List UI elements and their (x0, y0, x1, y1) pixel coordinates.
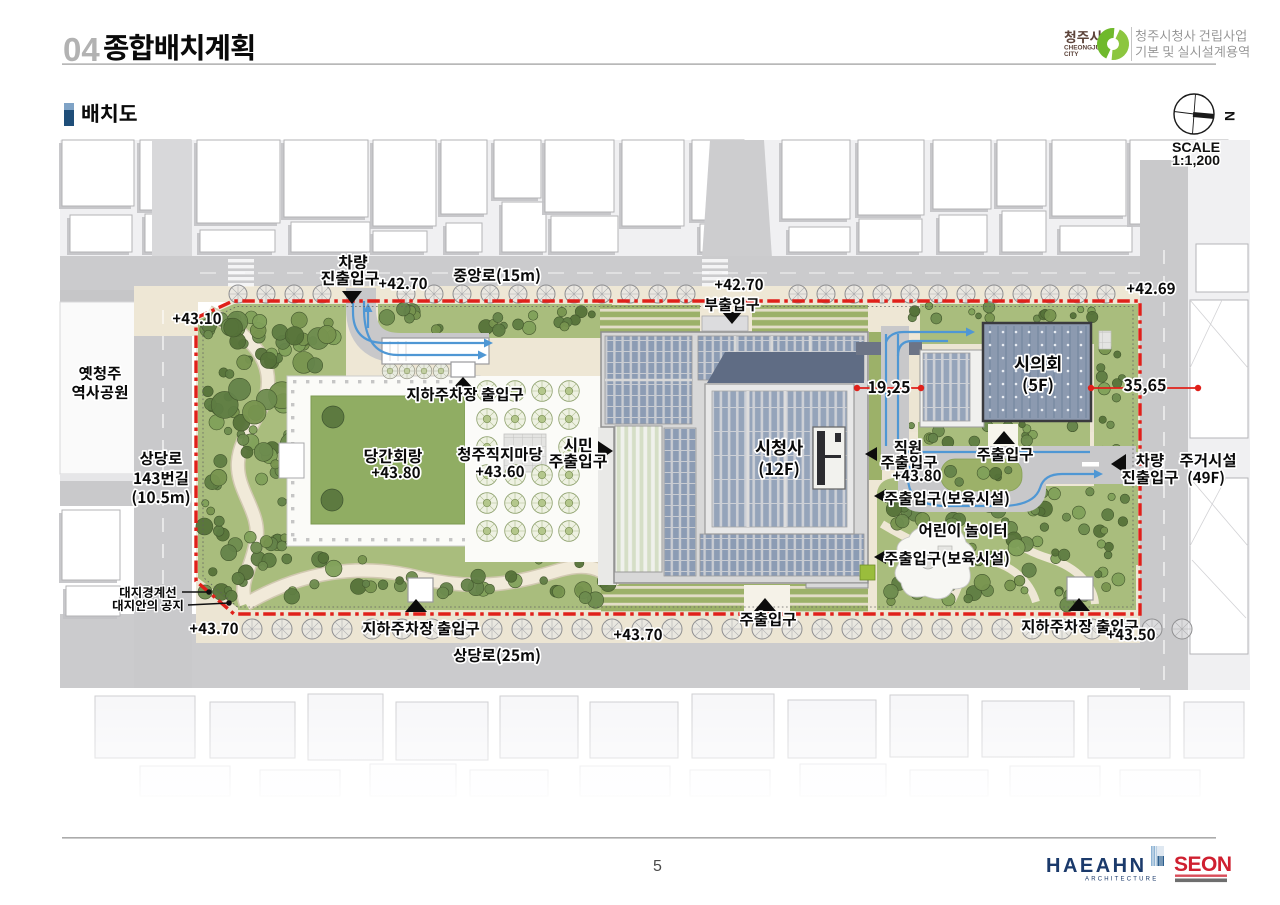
svg-text:N: N (1222, 111, 1238, 121)
svg-text:ARCHITECTURE: ARCHITECTURE (1085, 877, 1158, 883)
svg-text:5: 5 (653, 858, 662, 875)
svg-text:HAEAHN: HAEAHN (1046, 855, 1147, 877)
svg-text:04: 04 (63, 31, 100, 68)
svg-text:1:1,200: 1:1,200 (1172, 153, 1220, 169)
svg-text:CITY: CITY (1064, 51, 1079, 58)
svg-text:SEON: SEON (1174, 853, 1232, 876)
